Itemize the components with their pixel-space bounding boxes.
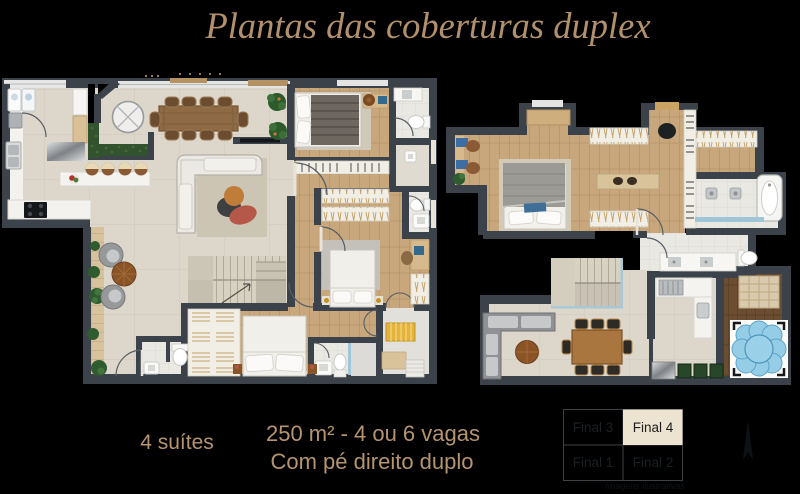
svg-text:4 suítes: 4 suítes: [140, 431, 214, 454]
svg-text:Final 3: Final 3: [573, 420, 614, 435]
svg-text:250 m² - 4 ou 6 vagas: 250 m² - 4 ou 6 vagas: [266, 421, 480, 446]
svg-text:Final 1: Final 1: [573, 455, 614, 470]
svg-text:Imagens ilustrativas: Imagens ilustrativas: [605, 481, 685, 491]
svg-text:Com pé direito duplo: Com pé direito duplo: [270, 449, 473, 474]
svg-text:Plantas das coberturas duplex: Plantas das coberturas duplex: [204, 5, 650, 46]
svg-text:Final 4: Final 4: [633, 420, 674, 435]
svg-text:Final 2: Final 2: [633, 455, 674, 470]
